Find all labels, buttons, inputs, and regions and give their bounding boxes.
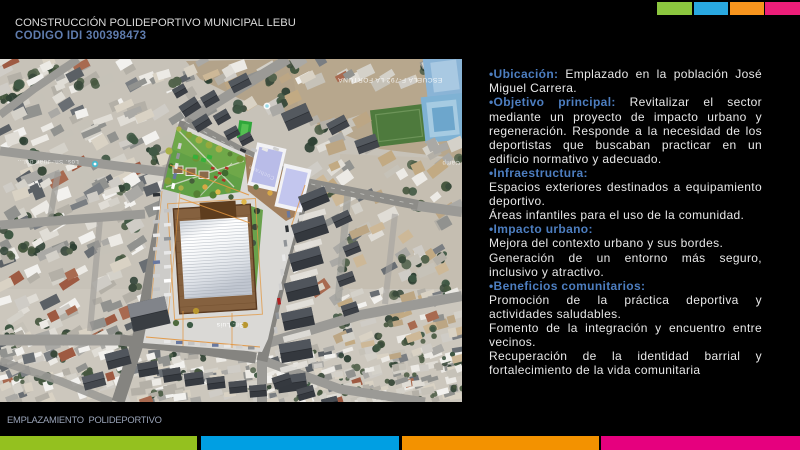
svg-text:Los. Sn. Juan del...: Los. Sn. Juan del... <box>17 158 78 164</box>
svg-text:ESCUELA F-792 LA FORTUNA: ESCUELA F-792 LA FORTUNA <box>338 76 443 83</box>
svg-text:Sn. Luis: Sn. Luis <box>216 321 244 328</box>
svg-text:Camp: Camp <box>442 159 460 165</box>
